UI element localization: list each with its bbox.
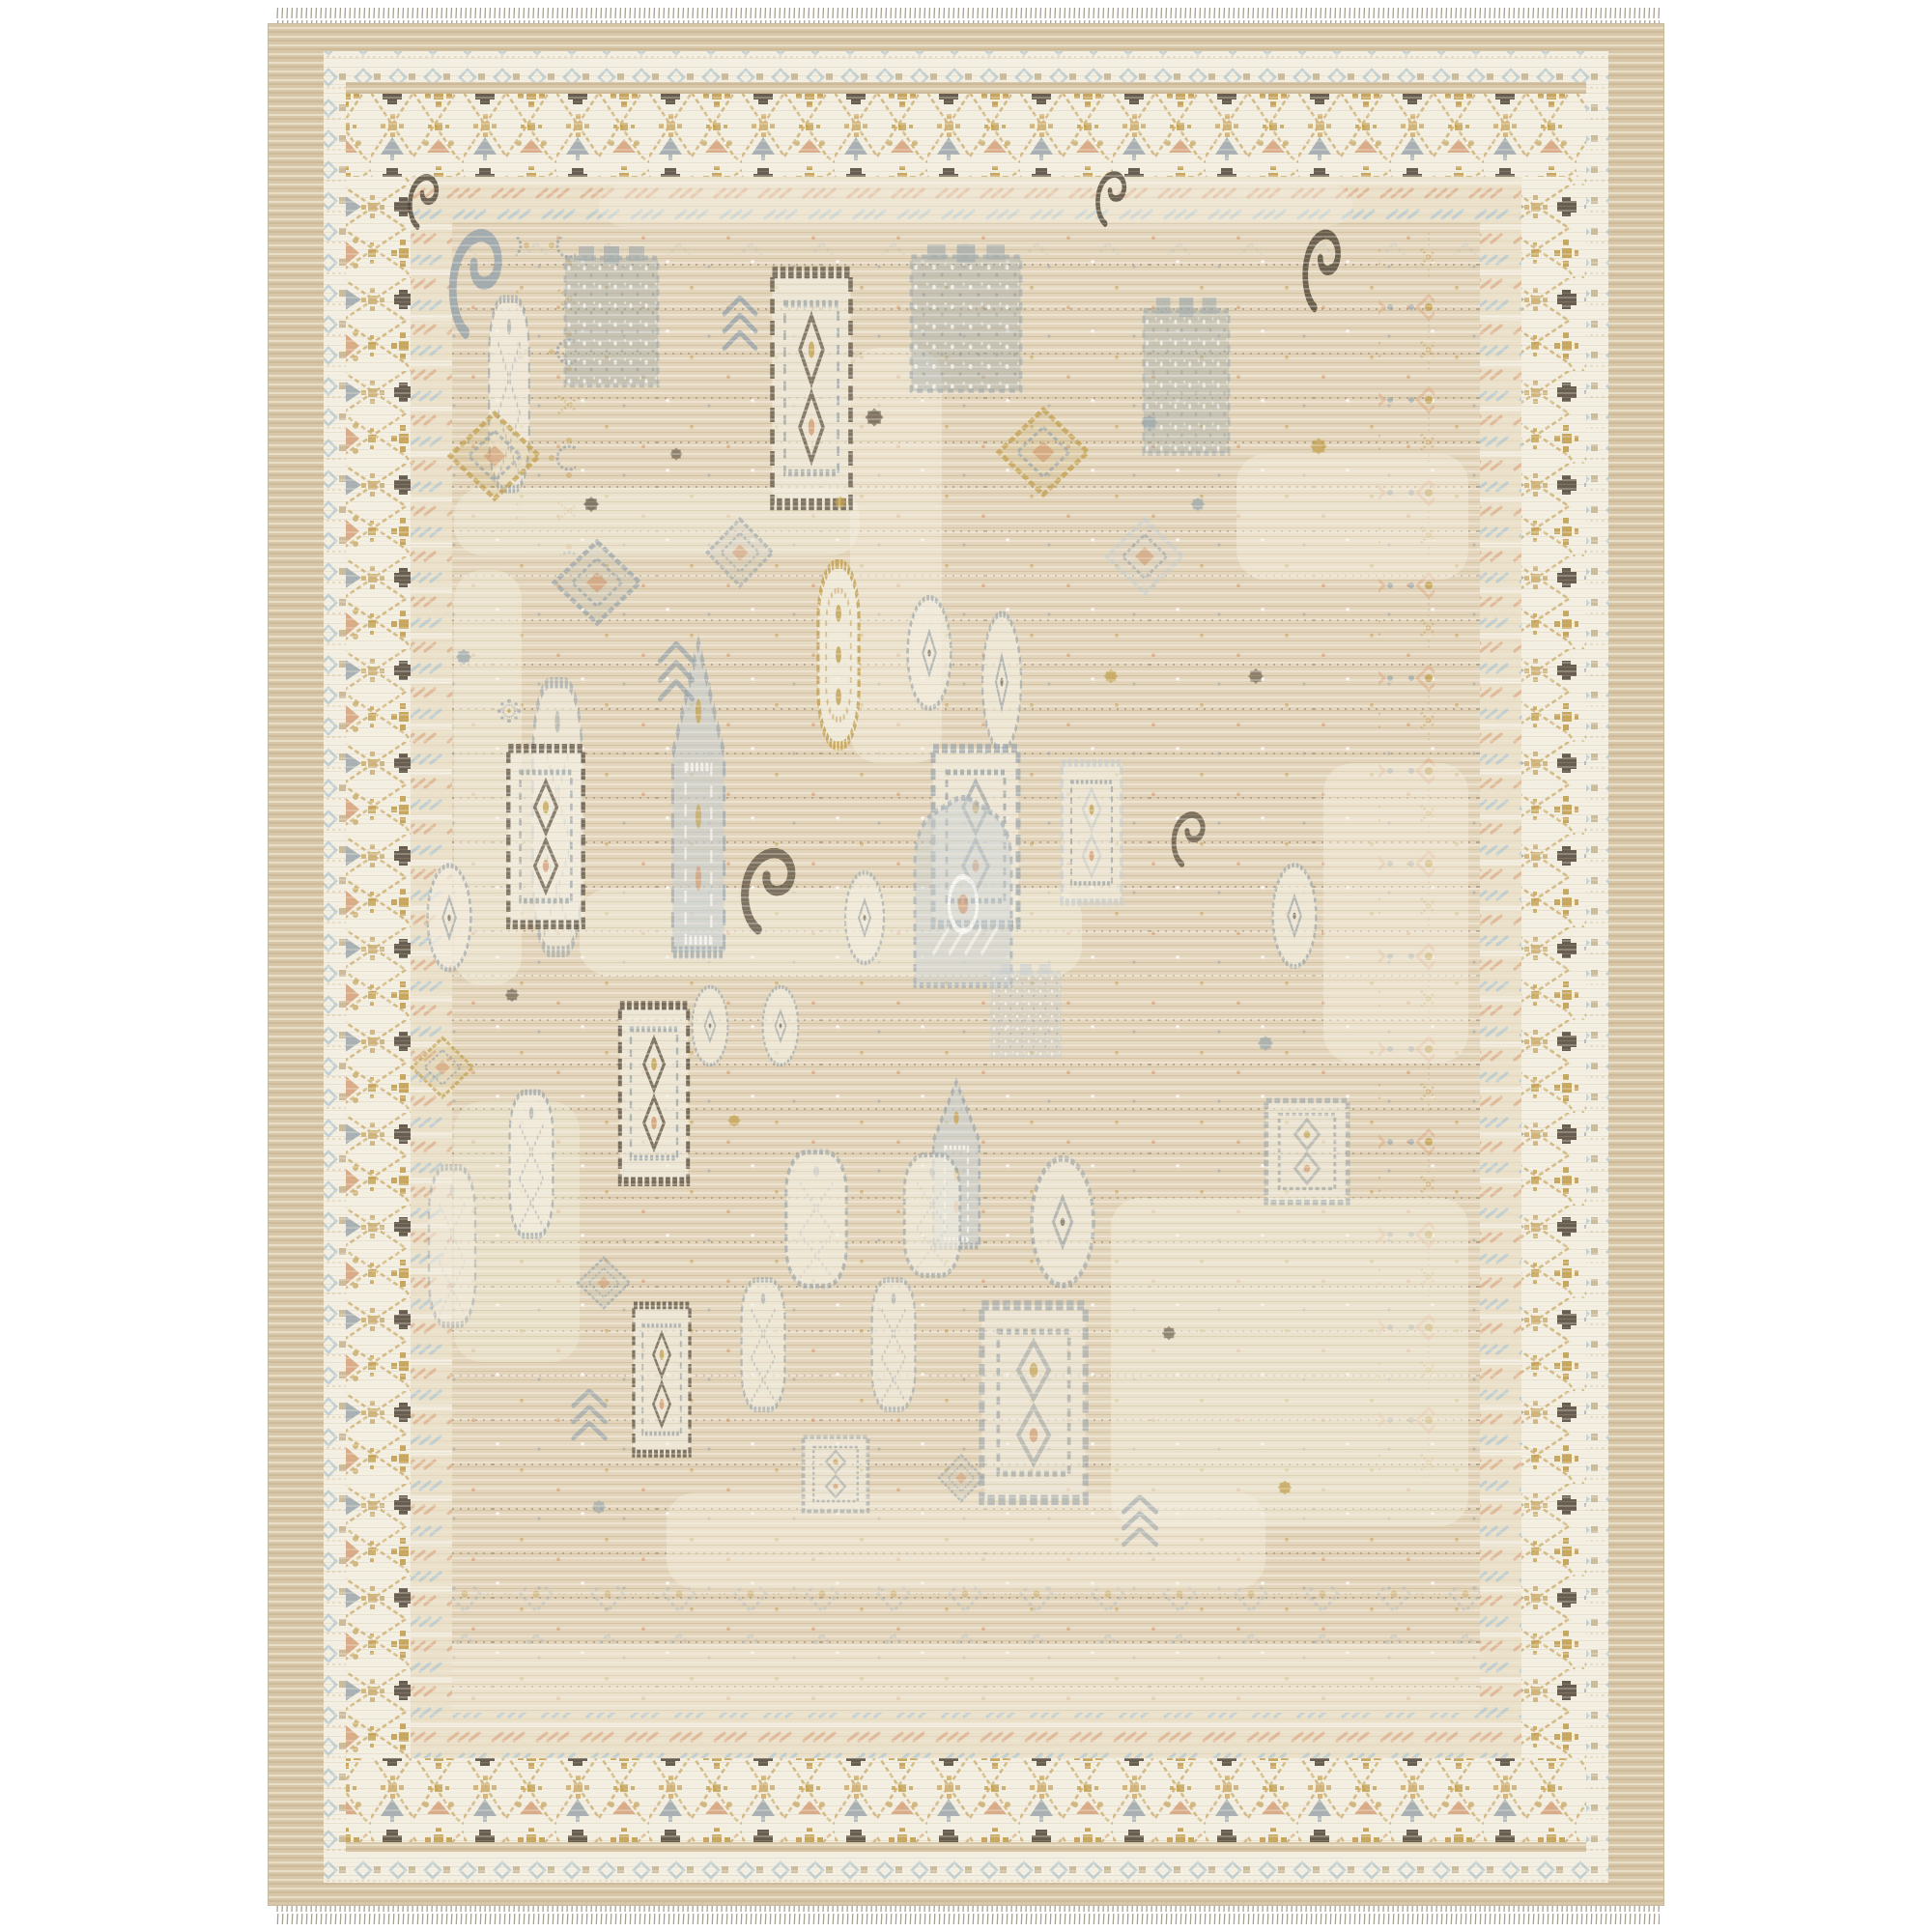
rug-wear-overlay	[269, 24, 1663, 1905]
rug	[269, 24, 1663, 1905]
product-photo-canvas	[0, 0, 1932, 1932]
rug-fringe-top	[276, 8, 1660, 25]
rug-fringe-bottom	[276, 1904, 1660, 1924]
rug-product-photo	[0, 0, 1932, 1932]
